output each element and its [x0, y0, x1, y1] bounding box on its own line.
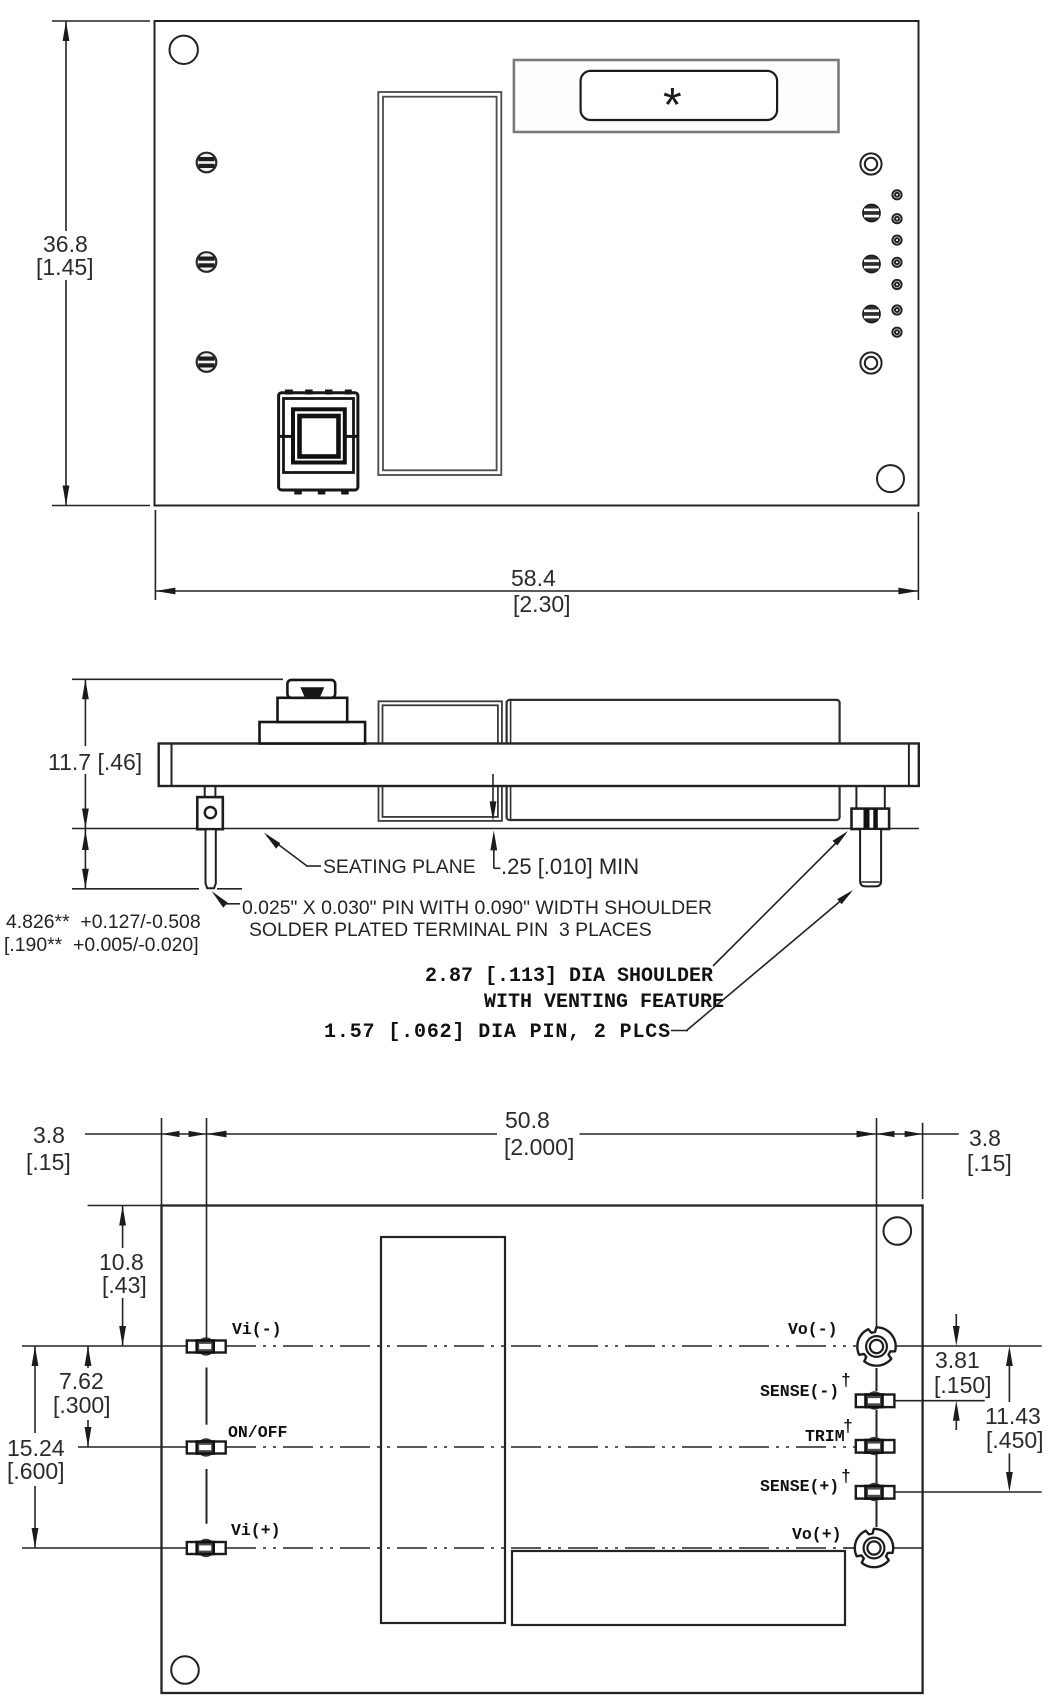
- svg-text:†: †: [841, 1371, 851, 1390]
- svg-text:11.7 [.46]: 11.7 [.46]: [48, 749, 142, 775]
- svg-text:SENSE(+): SENSE(+): [760, 1477, 839, 1496]
- svg-text:SENSE(-): SENSE(-): [760, 1382, 839, 1401]
- svg-text:TRIM: TRIM: [805, 1427, 845, 1446]
- svg-text:Vi(+): Vi(+): [231, 1521, 281, 1540]
- svg-text:[.190** +0.005/-0.020]: [.190** +0.005/-0.020]: [4, 934, 199, 956]
- svg-text:†: †: [841, 1467, 851, 1486]
- svg-text:Vo(+): Vo(+): [792, 1525, 842, 1544]
- svg-text:[2.000]: [2.000]: [504, 1134, 574, 1160]
- svg-text:[.15]: [.15]: [967, 1150, 1012, 1176]
- svg-text:.25 [.010] MIN: .25 [.010] MIN: [501, 854, 639, 879]
- svg-text:0.025" X 0.030" PIN WITH 0.090: 0.025" X 0.030" PIN WITH 0.090" WIDTH SH…: [242, 897, 712, 919]
- svg-text:7.62: 7.62: [59, 1368, 104, 1394]
- svg-text:Vo(-): Vo(-): [788, 1320, 838, 1339]
- svg-text:50.8: 50.8: [505, 1107, 550, 1133]
- svg-text:*: *: [663, 79, 682, 132]
- svg-text:SOLDER PLATED TERMINAL PIN 3: SOLDER PLATED TERMINAL PIN 3 PLACES: [249, 919, 652, 941]
- svg-text:[.15]: [.15]: [26, 1149, 71, 1175]
- svg-text:[.43]: [.43]: [102, 1272, 147, 1298]
- svg-text:†: †: [843, 1417, 853, 1436]
- svg-text:1.57 [.062] DIA PIN, 2 PLCS: 1.57 [.062] DIA PIN, 2 PLCS: [324, 1021, 671, 1044]
- svg-text:2.87 [.113] DIA SHOULDER: 2.87 [.113] DIA SHOULDER: [425, 965, 713, 988]
- svg-text:4.826** +0.127/-0.508: 4.826** +0.127/-0.508: [6, 911, 201, 933]
- svg-text:[.300]: [.300]: [53, 1392, 111, 1418]
- svg-text:[.600]: [.600]: [7, 1458, 65, 1484]
- svg-text:ON/OFF: ON/OFF: [228, 1423, 287, 1442]
- svg-text:11.43: 11.43: [985, 1403, 1041, 1429]
- svg-text:3.8: 3.8: [33, 1122, 65, 1148]
- svg-text:SEATING PLANE: SEATING PLANE: [323, 856, 476, 878]
- svg-text:[.450]: [.450]: [986, 1427, 1044, 1453]
- svg-text:3.81: 3.81: [935, 1347, 980, 1373]
- svg-text:[.150]: [.150]: [934, 1372, 992, 1398]
- svg-text:58.4: 58.4: [511, 565, 556, 591]
- svg-text:[1.45]: [1.45]: [36, 254, 94, 280]
- svg-text:Vi(-): Vi(-): [232, 1320, 282, 1339]
- svg-text:3.8: 3.8: [969, 1125, 1001, 1151]
- svg-text:WITH VENTING FEATURE: WITH VENTING FEATURE: [484, 991, 724, 1014]
- svg-text:[2.30]: [2.30]: [513, 591, 571, 617]
